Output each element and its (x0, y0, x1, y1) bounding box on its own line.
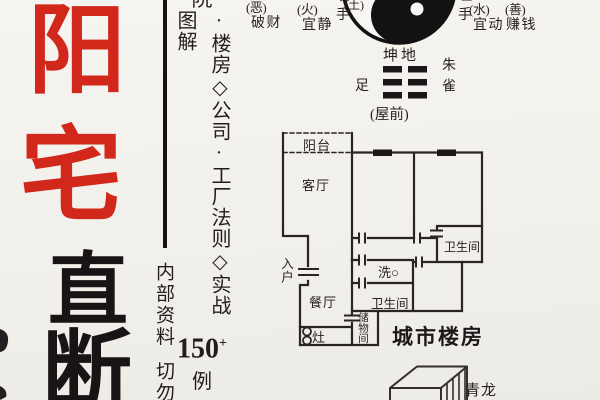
divider-rule (163, 0, 167, 248)
spine-count-unit: 例 (192, 365, 212, 394)
trigram-bottom-label: (屋前) (370, 103, 409, 124)
room-label-entry: 入户 (277, 257, 296, 284)
room-label-stove: 灶 (312, 327, 325, 346)
spine-clipped-char: 院 (190, 0, 214, 10)
spine-count-plus: + (219, 336, 227, 351)
room-label-balcony: 阳台 (303, 135, 331, 154)
notice-column: 内部资料 切勿 (148, 262, 178, 400)
building-block-drawing (390, 367, 467, 400)
notice-line1: 内部资料 (148, 262, 178, 348)
spine-subtitle-text: ·楼房◇公司·工厂法则◇实战图解 (168, 10, 236, 328)
taiji-left-text-2: 宜静 (302, 14, 333, 34)
taiji-element-label: (土) (344, 0, 364, 13)
trigram-right-label: 朱雀 (437, 57, 457, 99)
window-marks (373, 150, 456, 157)
room-label-bathroom2: 卫生间 (371, 293, 409, 312)
trigram-name: 坤地 (383, 44, 419, 65)
room-label-dining: 餐厅 (309, 292, 337, 311)
room-label-storage: 储物间 (355, 312, 370, 344)
building-block-label: 青龙 (465, 379, 497, 400)
room-label-bathroom1: 卫生间 (444, 238, 480, 255)
room-label-living: 客厅 (302, 175, 330, 194)
edge-fragments (0, 329, 8, 400)
notice-line2: 切勿 (148, 361, 178, 400)
book-page: 阳 宅 直 断 院 ·楼房◇公司·工厂法则◇实战图解 150+ 例 内部资料 切… (0, 0, 600, 400)
floorplan-caption: 城市楼房 (392, 321, 484, 351)
room-label-wash: 洗○ (378, 262, 399, 281)
spine-column: 院 ·楼房◇公司·工厂法则◇实战图解 150+ 例 (184, 0, 220, 394)
kun-trigram-icon (383, 66, 427, 99)
title-char-zhai: 宅 (20, 130, 122, 227)
taiji-left-text-1: 破财 (251, 12, 282, 32)
trigram-left-label: 足 (355, 75, 369, 95)
taiji-right-text-2: 赚钱 (506, 14, 537, 34)
title-char-zhi: 直 (48, 254, 128, 330)
title-char-yang: 阳 (28, 6, 126, 99)
title-char-duan: 断 (42, 332, 132, 400)
spine-count: 150+ (177, 331, 227, 362)
taiji-right-text-1: 宜动 (473, 14, 504, 34)
